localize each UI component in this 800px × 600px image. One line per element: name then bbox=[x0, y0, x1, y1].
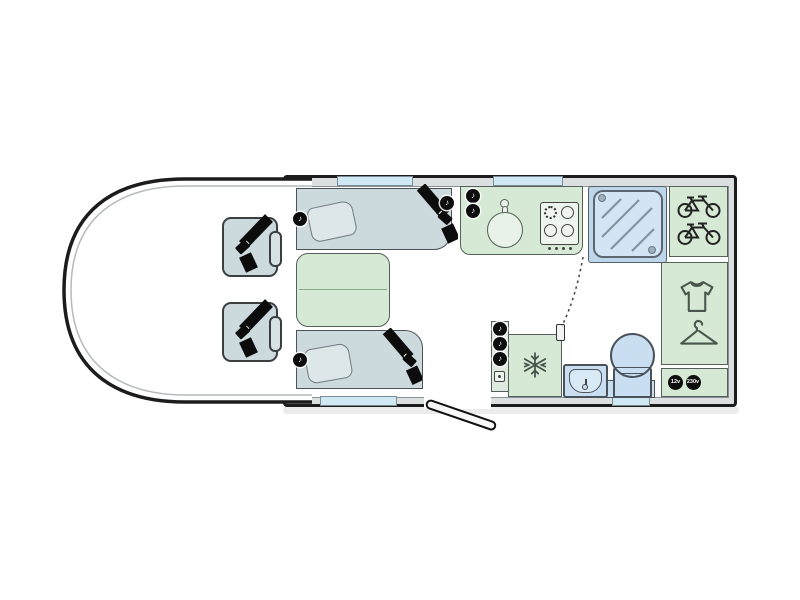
basin-tap-stem bbox=[585, 379, 587, 385]
window-bottom-lounge bbox=[320, 396, 397, 406]
motorhome-floorplan: ♪ ♪ ♪ ♪ ♪ bbox=[0, 0, 800, 600]
speaker-icon: ♪ bbox=[293, 212, 307, 226]
tshirt-icon bbox=[678, 279, 716, 314]
snowflake-icon bbox=[522, 352, 548, 378]
speaker-icon: ♪ bbox=[466, 204, 480, 218]
seatbelt-icon bbox=[414, 184, 458, 248]
12v-badge: 12v bbox=[668, 375, 683, 390]
hob-knob bbox=[562, 247, 565, 250]
hanger-icon bbox=[678, 318, 720, 347]
speaker-icon: ♪ bbox=[466, 189, 480, 203]
hob-burner bbox=[544, 206, 557, 219]
socket-icon: ♪ bbox=[493, 322, 507, 336]
socket-icon: ♪ bbox=[493, 337, 507, 351]
bicycle-icon bbox=[677, 219, 721, 246]
hob-knob bbox=[569, 247, 572, 250]
seatbelt-icon bbox=[380, 328, 422, 389]
bicycle-icon bbox=[677, 192, 721, 219]
ground-shadow bbox=[283, 406, 739, 414]
seatbelt-icon bbox=[224, 214, 276, 276]
shower-drain-icon bbox=[648, 246, 656, 254]
hob-burner bbox=[561, 206, 574, 219]
toilet-seat-line bbox=[620, 373, 645, 374]
speaker-icon: ♪ bbox=[440, 196, 454, 210]
toilet-seat-line bbox=[615, 367, 651, 368]
toilet-icon bbox=[610, 333, 655, 378]
hob-knob bbox=[548, 247, 551, 250]
lounge-table bbox=[296, 253, 390, 327]
sink-icon bbox=[487, 212, 523, 248]
washroom-wall-stub bbox=[556, 324, 565, 341]
230v-badge: 230v bbox=[686, 375, 701, 390]
hob-knob bbox=[555, 247, 558, 250]
hob-burner bbox=[544, 224, 557, 237]
shower-head-icon bbox=[598, 194, 606, 202]
table-divider bbox=[299, 289, 387, 290]
socket-icon: ♪ bbox=[493, 352, 507, 366]
window-top-kitchen bbox=[493, 176, 563, 186]
socket-outlet-icon bbox=[494, 371, 505, 382]
window-top-lounge bbox=[337, 176, 413, 186]
speaker-icon: ♪ bbox=[293, 353, 307, 367]
seatbelt-icon bbox=[224, 299, 276, 361]
hob-burner bbox=[561, 224, 574, 237]
